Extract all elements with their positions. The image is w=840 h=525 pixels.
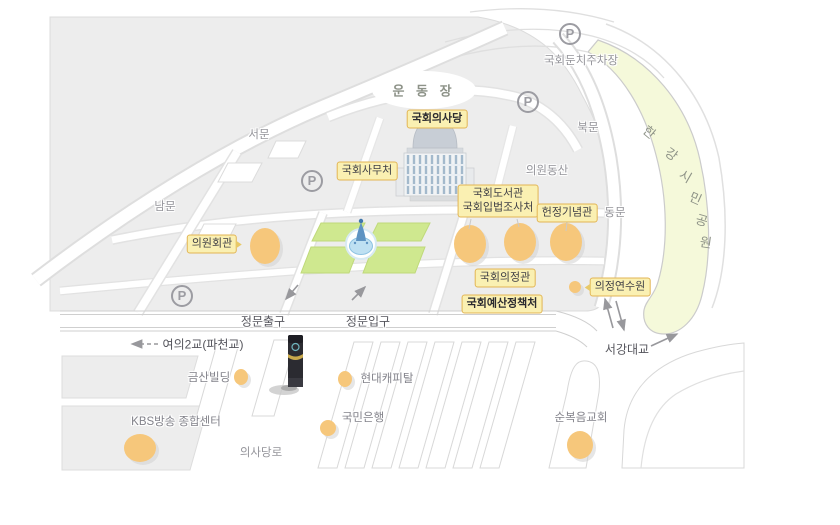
east-gate-label: 동문	[604, 204, 625, 220]
parking-icon: P	[171, 285, 193, 307]
kookmin-bank-label: 국민은행	[342, 409, 384, 425]
members-hill-label: 의원동산	[526, 162, 568, 178]
uisadang-ro-label: 의사당로	[240, 444, 282, 460]
full-gospel-church-label: 순복음교회	[555, 409, 608, 425]
yeoui-bridge-label: 여의2교(파천교)	[163, 336, 244, 353]
label-library: 국회도서관 국회입법조사처	[458, 185, 539, 218]
main-gate-entrance-label: 정문입구	[346, 313, 390, 330]
label-constitutional-memorial: 헌정기념관	[537, 204, 598, 223]
geumsan-building-label: 금산빌딩	[188, 369, 230, 385]
label-library-line2: 국회입법조사처	[463, 201, 534, 215]
label-uijeong-hall: 국회의정관	[475, 269, 536, 288]
label-training-institute: 의정연수원	[590, 278, 651, 297]
seogang-bridge-label: 서강대교	[605, 341, 649, 358]
hyundai-capital-label: 현대캐피탈	[361, 370, 414, 386]
label-members-office: 의원회관	[187, 235, 237, 254]
national-assembly-campus-map: P P P P 국회둔치주차장 운 동 장 서문 북문 남문 동문 의원동산 한…	[0, 0, 840, 525]
label-library-line1: 국회도서관	[463, 187, 534, 201]
playground-label: 운 동 장	[392, 81, 455, 100]
kbs-center-label: KBS방송 종합센터	[131, 413, 221, 429]
parking-icon: P	[301, 170, 323, 192]
parking-icon: P	[559, 23, 581, 45]
label-budget-office: 국회예산정책처	[462, 295, 543, 314]
main-gate-exit-label: 정문출구	[241, 313, 285, 330]
seogang-arrow	[651, 334, 677, 346]
parking-icon: P	[517, 91, 539, 113]
riverside-parking-label: 국회둔치주차장	[544, 52, 618, 68]
map-canvas	[0, 0, 840, 525]
north-gate-label: 북문	[577, 119, 598, 135]
label-assembly-hall: 국회의사당	[407, 110, 468, 129]
label-secretariat: 국회사무처	[337, 162, 398, 181]
south-gate-label: 남문	[154, 198, 175, 214]
west-gate-label: 서문	[248, 126, 269, 142]
bridge-down-arrow	[616, 301, 624, 330]
